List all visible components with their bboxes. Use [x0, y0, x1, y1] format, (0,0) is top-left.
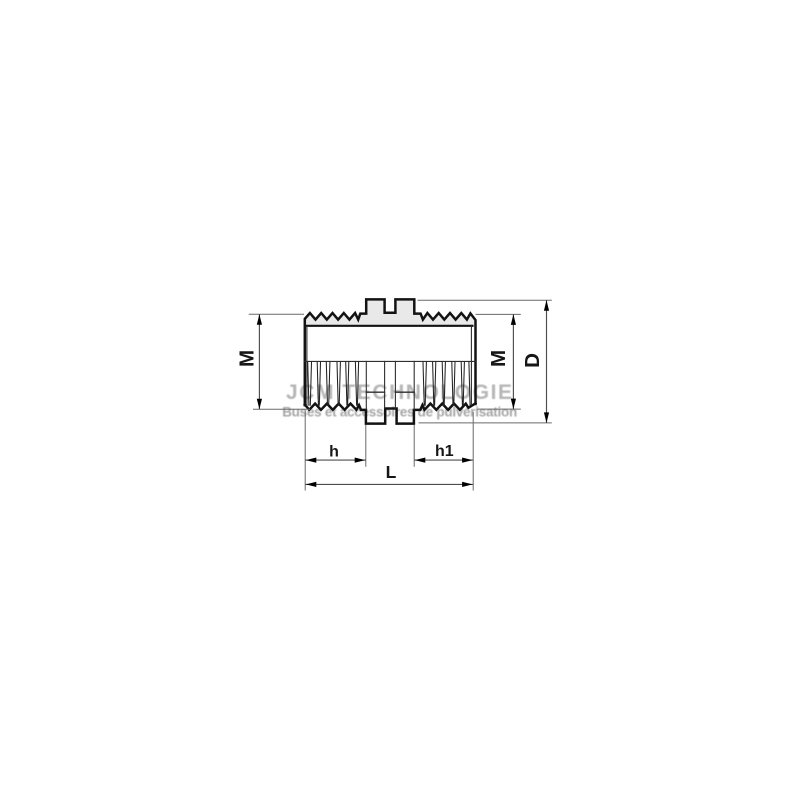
- svg-text:M: M: [236, 350, 259, 367]
- svg-text:h: h: [329, 443, 339, 460]
- svg-text:M: M: [487, 350, 510, 367]
- svg-text:L: L: [386, 462, 397, 482]
- svg-text:h1: h1: [435, 443, 454, 460]
- svg-text:D: D: [521, 353, 544, 368]
